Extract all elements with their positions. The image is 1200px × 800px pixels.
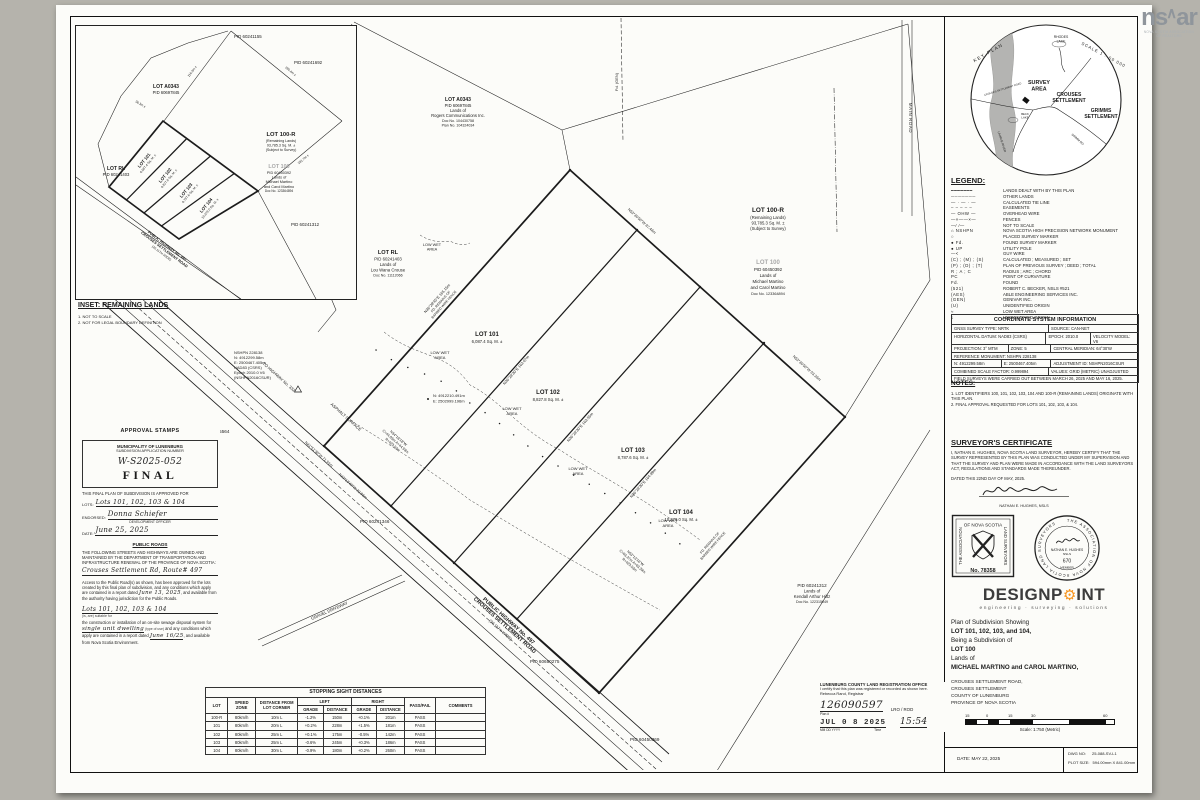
coord-cell: EPOCH: 2010.0 xyxy=(1045,333,1090,345)
svg-text:Michael Martino: Michael Martino xyxy=(753,279,785,284)
svg-text:(Remaining Lands): (Remaining Lands) xyxy=(266,139,296,143)
inset-lot101: LOT 101 6,087.4 Sq. M. ± xyxy=(135,150,157,174)
svg-text:SETTLEMENT: SETTLEMENT xyxy=(1084,114,1117,120)
sight-cell: -0.6% xyxy=(298,738,323,746)
svg-text:AREA: AREA xyxy=(427,248,438,252)
endorsed-label: ENDORSED: xyxy=(82,515,106,520)
inset-note-2: 2. NOT FOR LEGAL BOUNDARY DEFINITION xyxy=(78,320,162,325)
svg-text:N41°51'30"W 71.91m: N41°51'30"W 71.91m xyxy=(304,441,334,468)
svg-text:(NSHPN2016CSUR): (NSHPN2016CSUR) xyxy=(234,375,272,380)
svg-text:116.3m ±: 116.3m ± xyxy=(187,65,198,78)
coord-table: COORDINATE SYSTEM INFORMATION GNSS SURVE… xyxy=(951,314,1139,383)
svg-text:Lands of: Lands of xyxy=(380,262,397,267)
sight-cell: 175m xyxy=(323,730,351,738)
coord-row: PROJECTION: 3° MTMZONE: 5CENTRAL MERIDIA… xyxy=(952,344,1138,352)
fd-gen-label: Fd. (GEN) xyxy=(614,72,619,91)
sight-cell xyxy=(436,730,486,738)
registration-stamp-date: JUL 0 8 2025 xyxy=(820,719,886,728)
sight-cell: 80km/h xyxy=(228,738,256,746)
sight-cell: +0.2% xyxy=(298,722,323,730)
sight-cell: 80km/h xyxy=(228,722,256,730)
sewage-para: the construction or installation of an o… xyxy=(82,620,218,644)
sewage-lots: Lots 101, 102, 103 & 104 xyxy=(82,606,218,615)
svg-text:NSLS: NSLS xyxy=(1063,552,1071,556)
endorsed-sub: DEVELOPMENT OFFICER xyxy=(80,520,220,524)
svg-text:and Carol Martino: and Carol Martino xyxy=(751,285,786,290)
sight-row: 10480km/h30m L-0.9%180m+0.2%260mPASS xyxy=(206,746,486,754)
title-line-3: Being a Subdivision of xyxy=(951,637,1137,646)
svg-text:SETTLEMENT: SETTLEMENT xyxy=(1052,98,1085,104)
public-roads-value: Crouses Settlement Rd, Route# 497 xyxy=(82,567,218,576)
col-passfail: PASS/FAIL xyxy=(404,697,435,713)
sight-table-title: STOPPING SIGHT DISTANCES xyxy=(205,687,486,697)
svg-text:36.3m ±: 36.3m ± xyxy=(135,99,147,108)
lot-104-label: LOT 104 xyxy=(669,510,693,516)
sight-cell: 80km/h xyxy=(228,714,256,722)
svg-text:CROUSES SETTLEMENT ROAD: CROUSES SETTLEMENT ROAD xyxy=(140,231,188,269)
sight-cell: 103 xyxy=(206,738,228,746)
svg-text:93,785.3 Sq. M. ±: 93,785.3 Sq. M. ± xyxy=(751,221,785,226)
plan-date: DATE: MAY 22, 2025 xyxy=(957,756,1000,761)
curve2-label: N53°13'16"W C=63.27m A=63.29m R=423.53m xyxy=(615,545,649,577)
svg-text:Doc No. 122315049: Doc No. 122315049 xyxy=(796,600,828,604)
access-para: Access to the Public Road(s) as shown, h… xyxy=(82,580,218,602)
registration-block: LUNENBURG COUNTY LAND REGISTRATION OFFIC… xyxy=(820,682,948,732)
svg-text:PID 60450392: PID 60450392 xyxy=(267,171,291,175)
coord-cell: COMBINED SCALE FACTOR: 0.999894 xyxy=(952,368,1048,375)
key-plan: KEY PLAN SCALE 1 : 50 000 RHODES LAKE SU… xyxy=(967,25,1127,178)
svg-text:Kendall Arthur Hiltz: Kendall Arthur Hiltz xyxy=(794,594,831,599)
legend-rows: ━━━━━━━LANDS DEALT WITH BY THIS PLAN────… xyxy=(951,188,1137,320)
hiltz-parcel: PID 60241312 xyxy=(797,583,827,588)
pid-label: PID 60650275 xyxy=(530,659,560,664)
brand-left: DESIGNP xyxy=(983,585,1063,604)
lot-100r-name: LOT 100-R xyxy=(752,207,784,214)
dwg-label: DWG NO: xyxy=(1068,751,1086,756)
sight-cell: PASS xyxy=(404,738,435,746)
registration-time: 15:54 xyxy=(900,717,927,728)
title-line-1: Plan of Subdivision Showing xyxy=(951,619,1137,628)
svg-text:280.4m ±: 280.4m ± xyxy=(284,65,297,77)
nsar-watermark: ns ∧ ar NOVA SCOTIA ASSOCIATION OF REALT… xyxy=(1139,6,1199,38)
svg-text:N: 4912210.491m: N: 4912210.491m xyxy=(433,393,465,398)
sight-cell: 150m xyxy=(323,714,351,722)
coord-cell: N: 4912299.58m xyxy=(952,360,1001,367)
svg-text:Lands of: Lands of xyxy=(760,273,778,278)
col-distance-corner: DISTANCE FROM LOT CORNER xyxy=(255,697,298,713)
plot-label: PLOT SIZE: xyxy=(1068,760,1090,765)
sight-cell: 245m xyxy=(323,738,351,746)
approval-panel: APPROVAL STAMPS MUNICIPALITY OF LUNENBUR… xyxy=(80,428,220,647)
svg-text:(Subject to Survey): (Subject to Survey) xyxy=(266,148,297,152)
inset-box: PID 60241155 PID 60241692 LOT A0343 PID … xyxy=(75,25,357,300)
sight-cell: PASS xyxy=(404,722,435,730)
sight-cell: 260m xyxy=(376,746,404,754)
svg-text:(Subject to Survey): (Subject to Survey) xyxy=(750,226,786,231)
roof-icon: ∧ xyxy=(1166,6,1177,21)
svg-text:Rogers Communications Inc.: Rogers Communications Inc. xyxy=(431,113,485,118)
svg-text:N43°13'40"W 22.86m: N43°13'40"W 22.86m xyxy=(338,473,368,500)
sight-cell: 228m xyxy=(323,722,351,730)
brand-tagline: engineering · surveying · solutions xyxy=(951,606,1137,611)
endorsed-value: Donna Schiefer xyxy=(108,510,218,520)
svg-text:Doc No. 123364894: Doc No. 123364894 xyxy=(265,189,294,193)
svg-text:LAND SURVEYORS: LAND SURVEYORS xyxy=(1003,526,1008,565)
svg-text:LAKE: LAKE xyxy=(1057,39,1066,43)
scale-ticks: 15 0 15 30 60 xyxy=(965,713,1115,719)
public-roads-para: THE FOLLOWING STREETS AND HIGHWAYS ARE O… xyxy=(82,550,218,565)
svg-text:281.7m ±: 281.7m ± xyxy=(297,153,310,165)
sight-cell: +1.5% xyxy=(351,722,376,730)
survey-marker-dots xyxy=(323,169,846,694)
application-number-line: SUBDIVISION APPLICATION NUMBER xyxy=(86,449,214,454)
sewage-type-sub: (type of use) xyxy=(145,627,164,631)
sight-cell: -0.9% xyxy=(298,746,323,754)
sight-cell: 102 xyxy=(206,730,228,738)
svg-text:MEMBER: MEMBER xyxy=(1060,565,1074,569)
signature-area: NATHAN E. HUGHES, NSLS xyxy=(979,483,1137,508)
sewage-type: single unit dwelling xyxy=(82,626,144,633)
scale-bar: 15 0 15 30 60 Scale: 1:750 (Metric) xyxy=(965,713,1115,732)
sight-table-body: 100-R80km/h10m L-1.2%150m+0.1%201mPASS10… xyxy=(206,714,486,755)
svg-text:THE ASSOCIATION: THE ASSOCIATION xyxy=(958,527,963,565)
site-address: CROUSES SETTLEMENT ROAD, CROUSES SETTLEM… xyxy=(951,678,1137,706)
coord-row: GNSS SURVEY TYPE: NRTKSOURCE: CAN-NET xyxy=(952,324,1138,332)
coord-cell: VALUES: GRID (METRIC) UNADJUSTED xyxy=(1048,368,1138,375)
inset-heading: INSET: REMAINING LANDS xyxy=(78,302,168,309)
coord-row: HORIZONTAL DATUM: NAD83 (CSRS)EPOCH: 201… xyxy=(952,332,1138,345)
sight-cell: +0.3% xyxy=(351,738,376,746)
sight-cell: PASS xyxy=(404,746,435,754)
plan-number-label: Plan # xyxy=(820,712,948,716)
inset-pid-60241692: PID 60241692 xyxy=(294,60,323,65)
plan-number-value: 126090597 xyxy=(820,699,883,712)
lots-value: Lots 101, 102, 103 & 104 xyxy=(96,498,218,507)
plan-title: Plan of Subdivision Showing LOT 101, 102… xyxy=(951,619,1137,673)
svg-text:93,785.3 Sq. M. ±: 93,785.3 Sq. M. ± xyxy=(267,144,295,148)
dwg-number: 25-088-SV-L1 xyxy=(1092,751,1117,756)
svg-text:Michael Martino: Michael Martino xyxy=(266,180,293,184)
designpoint-logo: DESIGNP⚙INT engineering · surveying · so… xyxy=(951,585,1137,611)
lot-rl-name: LOT RL xyxy=(378,250,399,256)
gravel-label: GRAVEL DRIVEWAY xyxy=(310,600,348,621)
approved-for-text: THIS FINAL PLAN OF SUBDIVISION IS APPROV… xyxy=(82,491,218,496)
application-number-value: W-S2025-052 xyxy=(86,457,214,468)
coord-cell: GNSS SURVEY TYPE: NRTK xyxy=(952,325,1048,332)
sight-cell: 80km/h xyxy=(228,746,256,754)
certificate-body: I, NATHAN E. HUGHES, NOVA SCOTIA LAND SU… xyxy=(951,450,1137,472)
legend-title: LEGEND: xyxy=(951,176,1137,185)
survey-area-label: SURVEY xyxy=(1028,80,1050,86)
sight-cell xyxy=(436,738,486,746)
col-left: LEFT xyxy=(298,697,351,705)
coord-cell: ADJUSTMENT ID: NSHPN2016CSUR xyxy=(1050,360,1138,367)
coord-cell: ZONE: 5 xyxy=(1008,345,1051,352)
sight-cell xyxy=(436,722,486,730)
registrar-name: Rebecca Rand, Registrar xyxy=(820,691,948,696)
sewage-date: June 16/25 xyxy=(150,633,184,640)
lots-line: LOTS: Lots 101, 102, 103 & 104 xyxy=(82,498,218,507)
svg-text:LOW WET: LOW WET xyxy=(423,243,442,247)
lot-101-label: LOT 101 xyxy=(475,332,499,338)
sight-cell: -1.2% xyxy=(298,714,323,722)
svg-text:Lands of: Lands of xyxy=(272,176,288,180)
col-lot: LOT xyxy=(206,697,228,713)
nsls-round-seal: THE ASSOCIATION OF NOVA SCOTIA LAND SURV… xyxy=(1033,514,1101,582)
svg-text:N36°28'30"E 162.07m: N36°28'30"E 162.07m xyxy=(502,355,530,386)
certificate-heading: SURVEYOR'S CERTIFICATE xyxy=(951,438,1137,447)
lot-102-label: LOT 102 xyxy=(536,390,560,396)
sight-cell: 30m L xyxy=(255,746,298,754)
svg-text:AREA: AREA xyxy=(507,411,518,416)
sight-cell: PASS xyxy=(404,714,435,722)
main-road-label: MAIN ROAD xyxy=(908,103,913,133)
svg-text:N53°30'50"W 63.36m: N53°30'50"W 63.36m xyxy=(792,355,822,382)
inset-lot102: LOT 102 8,827.8 Sq. M. ± xyxy=(156,165,178,189)
surveyor-certificate: SURVEYOR'S CERTIFICATE I, NATHAN E. HUGH… xyxy=(951,438,1137,582)
lro-rod: LRO / ROD xyxy=(891,707,913,712)
certificate-dated: DATED THIS 22ND DAY OF MAY, 2025. xyxy=(951,476,1137,481)
coord-cell: CENTRAL MERIDIAN: 64°30'W xyxy=(1050,345,1138,352)
sight-row: 10180km/h20m L+0.2%228m+1.5%181mPASS xyxy=(206,722,486,730)
sight-cell: 25m L xyxy=(255,730,298,738)
fence2-label: FD. REMAINS OF BARBED WIRE FENCE xyxy=(696,528,727,561)
inset-lot103: LOT 103 8,787.6 Sq. M. ± xyxy=(177,180,199,204)
endorsed-line: ENDORSED: Donna Schiefer xyxy=(82,510,218,520)
coord-cell: PROJECTION: 3° MTM xyxy=(952,345,1008,352)
svg-text:PID 60697845: PID 60697845 xyxy=(153,90,180,95)
notes-panel: NOTES: 1. LOT IDENTIFIERS 100, 101, 102,… xyxy=(951,380,1137,407)
nsls-square-stamp: OF NOVA SCOTIA THE ASSOCIATION LAND SURV… xyxy=(951,514,1015,578)
svg-text:PID 60241403: PID 60241403 xyxy=(374,257,402,262)
inset-note-1: 1. NOT TO SCALE xyxy=(78,314,112,319)
col-comments: COMMENTS xyxy=(436,697,486,713)
svg-text:Lands of: Lands of xyxy=(804,589,821,594)
sight-cell: 100-R xyxy=(206,714,228,722)
coord-row: N: 4912299.58mE: 2500467.405mADJUSTMENT … xyxy=(952,359,1138,367)
sight-distance-table: STOPPING SIGHT DISTANCES LOT SPEED ZONE … xyxy=(205,687,486,755)
svg-text:AREA: AREA xyxy=(435,355,446,360)
approval-date-label: DATE: xyxy=(82,531,93,536)
svg-text:(Remaining Lands): (Remaining Lands) xyxy=(750,215,786,220)
approval-date-value: June 25, 2025 xyxy=(95,526,218,536)
sight-cell: 181m xyxy=(376,722,404,730)
road-name-label: PUBLIC HIGHWAY No. 497 CROUSES SETTLEMEN… xyxy=(469,592,541,659)
watermark-ar: ar xyxy=(1176,6,1197,30)
svg-text:Lou Wana Crouse: Lou Wana Crouse xyxy=(371,268,406,273)
svg-text:Doc No. 104430758: Doc No. 104430758 xyxy=(442,119,474,123)
svg-text:8,827.8 Sq. M. ±: 8,827.8 Sq. M. ± xyxy=(533,397,564,402)
svg-text:AREA: AREA xyxy=(663,523,674,528)
coord-row: REFERENCE MONUMENT: NSHPN 228138 xyxy=(952,352,1138,360)
col-right: RIGHT xyxy=(351,697,404,705)
note-2: 2. FINAL APPROVAL REQUESTED FOR LOTS 101… xyxy=(951,402,1137,407)
signature-name: NATHAN E. HUGHES, NSLS xyxy=(979,504,1069,508)
title-line-4: LOT 100 xyxy=(951,646,1137,655)
watermark-sub2: OF REALTORS xyxy=(1139,34,1199,38)
svg-text:Doc No. 123364894: Doc No. 123364894 xyxy=(751,292,785,296)
municipal-stamp-box: MUNICIPALITY OF LUNENBURG SUBDIVISION AP… xyxy=(82,440,218,488)
watermark-ns: ns xyxy=(1141,6,1167,30)
svg-text:PID 60241403: PID 60241403 xyxy=(103,172,130,177)
title-line-6: MICHAEL MARTINO and CAROL MARTINO, xyxy=(951,664,1137,673)
sight-cell: 25m L xyxy=(255,738,298,746)
sight-cell: 10m L xyxy=(255,714,298,722)
col-speed: SPEED ZONE xyxy=(228,697,256,713)
coord-row: COMBINED SCALE FACTOR: 0.999894VALUES: G… xyxy=(952,367,1138,375)
final-stamp: FINAL xyxy=(86,468,214,483)
sight-cell: 142m xyxy=(376,730,404,738)
inset-pid-60241312: PID 60241312 xyxy=(291,222,320,227)
notes-title: NOTES: xyxy=(951,380,1137,387)
surveyor-signature xyxy=(979,483,1069,499)
inset-drawing: PID 60241155 PID 60241692 LOT A0343 PID … xyxy=(76,26,356,299)
coord-cell: HORIZONTAL DATUM: NAD83 (CSRS) xyxy=(952,333,1045,345)
svg-text:LAKE: LAKE xyxy=(1021,115,1028,119)
gear-icon: ⚙ xyxy=(1063,587,1076,604)
inset-pid-60241155: PID 60241155 xyxy=(234,34,262,39)
svg-text:AREA: AREA xyxy=(573,471,584,476)
bottom-strip: DATE: MAY 22, 2025 DWG NO: 25-088-SV-L1 … xyxy=(945,747,1137,772)
approval-heading: APPROVAL STAMPS xyxy=(80,428,220,435)
sight-cell xyxy=(436,746,486,754)
inset-road-label: PUBLIC HIGHWAY No. 497 CROUSES SETTLEMEN… xyxy=(137,227,191,272)
title-line-5: Lands of xyxy=(951,655,1137,664)
svg-text:Plan No. 104324034: Plan No. 104324034 xyxy=(442,124,475,128)
note-1: 1. LOT IDENTIFIERS 100, 101, 102, 103, 1… xyxy=(951,391,1137,401)
access-date: June 13, 2025 xyxy=(139,590,181,596)
svg-text:N53°30'50"W 87.44m: N53°30'50"W 87.44m xyxy=(627,208,657,235)
sewage-suffix: (is, are) suitable for xyxy=(82,614,218,618)
pid-label: PID 60450369 xyxy=(630,737,660,742)
lot-100-name: LOT 100 xyxy=(756,260,780,266)
sight-cell: 201m xyxy=(376,714,404,722)
sight-cell: 101 xyxy=(206,722,228,730)
date-format: MM DD YYYY xyxy=(820,728,840,732)
title-block: DESIGNP⚙INT engineering · surveying · so… xyxy=(951,585,1137,732)
sight-cell: +0.1% xyxy=(351,714,376,722)
lots-label: LOTS: xyxy=(82,502,94,507)
svg-text:N36°28'30"E 164.89m: N36°28'30"E 164.89m xyxy=(629,468,657,499)
sight-cell: 180m xyxy=(323,746,351,754)
approval-date-line: DATE: June 25, 2025 xyxy=(82,526,218,536)
svg-text:PID 60450392: PID 60450392 xyxy=(754,267,783,272)
coord-cell: E: 2500467.405m xyxy=(1001,360,1051,367)
coord-title: COORDINATE SYSTEM INFORMATION xyxy=(952,315,1138,324)
sight-cell: -0.5% xyxy=(351,730,376,738)
sight-cell: 186m xyxy=(376,738,404,746)
inset-100r: LOT 100-R xyxy=(267,132,297,138)
sight-cell xyxy=(436,714,486,722)
sight-cell: +0.1% xyxy=(298,730,323,738)
coord-cell: VELOCITY MODEL: V6 xyxy=(1090,333,1138,345)
svg-text:6,087.4 Sq. M. ±: 6,087.4 Sq. M. ± xyxy=(472,339,503,344)
svg-text:OF NOVA SCOTIA: OF NOVA SCOTIA xyxy=(964,522,1003,527)
svg-text:AREA: AREA xyxy=(1031,86,1046,92)
svg-text:RHODES: RHODES xyxy=(1054,35,1069,39)
coord-cell: SOURCE: CAN-NET xyxy=(1048,325,1138,332)
legend-panel: LEGEND: ━━━━━━━LANDS DEALT WITH BY THIS … xyxy=(951,176,1137,320)
svg-text:8,787.6 Sq. M. ±: 8,787.6 Sq. M. ± xyxy=(618,455,649,460)
sight-cell: PASS xyxy=(404,730,435,738)
pid-label: PID 60241346 xyxy=(360,519,390,524)
seal-number: 670 xyxy=(1063,558,1072,564)
stamp-number: No. 78358 xyxy=(970,568,995,574)
scale-bar-blocks xyxy=(965,719,1115,725)
sight-row: 10280km/h25m L+0.1%175m-0.5%142mPASS xyxy=(206,730,486,738)
sight-cell: 20m L xyxy=(255,722,298,730)
sight-cell: 80km/h xyxy=(228,730,256,738)
sight-cell: +0.2% xyxy=(351,746,376,754)
scale-caption: Scale: 1:750 (Metric) xyxy=(965,727,1115,732)
svg-text:E: 2502999.196m: E: 2502999.196m xyxy=(433,399,465,404)
inset-lot100: LOT 100 xyxy=(268,164,289,170)
time-label: Time xyxy=(874,728,881,732)
brand-right: INT xyxy=(1076,585,1105,604)
asphalt-label: ASPHALT SURFACE xyxy=(330,402,363,432)
plot-size: 594.00mm X 841.00mm xyxy=(1093,760,1136,765)
svg-text:Doc No. 11112066: Doc No. 11112066 xyxy=(373,274,402,278)
sight-row: 10380km/h25m L-0.6%245m+0.3%186mPASS xyxy=(206,738,486,746)
svg-text:N36°28'30"E 163.55m: N36°28'30"E 163.55m xyxy=(566,412,594,443)
sight-cell: 104 xyxy=(206,746,228,754)
sight-row: 100-R80km/h10m L-1.2%150m+0.1%201mPASS xyxy=(206,714,486,722)
title-line-2: LOT 101, 102, 103, and 104, xyxy=(951,628,1137,637)
public-roads-heading: PUBLIC ROADS xyxy=(80,542,220,548)
coord-table-rows: GNSS SURVEY TYPE: NRTKSOURCE: CAN-NETHOR… xyxy=(952,324,1138,382)
sight-table: LOT SPEED ZONE DISTANCE FROM LOT CORNER … xyxy=(205,697,486,755)
curve1-label: N34°18'18"W C=44.93m A=44.93m R=423.53m xyxy=(378,425,412,457)
stamps-row: OF NOVA SCOTIA THE ASSOCIATION LAND SURV… xyxy=(951,514,1137,582)
lot-103-label: LOT 103 xyxy=(621,448,645,454)
coord-cell: REFERENCE MONUMENT: NSHPN 228138 xyxy=(952,353,1138,360)
